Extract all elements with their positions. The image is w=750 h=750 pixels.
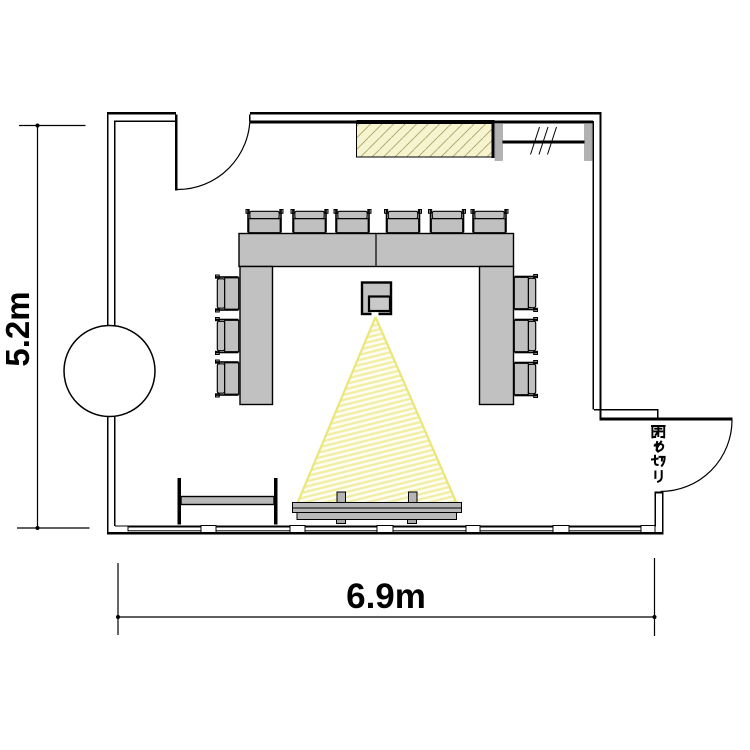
svg-text:6.9m: 6.9m	[346, 577, 426, 616]
svg-text:5.2m: 5.2m	[0, 291, 36, 366]
